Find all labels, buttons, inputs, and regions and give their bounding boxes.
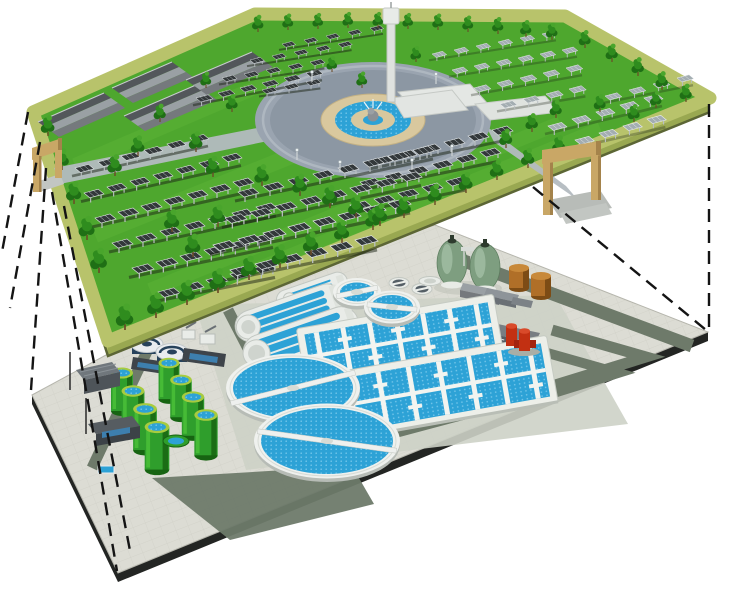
projection-line	[10, 142, 40, 308]
clarifier	[254, 404, 400, 483]
clarifier	[364, 291, 420, 328]
green-tank	[194, 409, 217, 460]
illustration-stage	[0, 0, 740, 589]
gas-holder	[389, 278, 409, 289]
brown-tank	[509, 264, 529, 292]
circular-pad	[419, 277, 441, 286]
exploded-view-illustration	[0, 0, 740, 589]
projection-line	[31, 168, 46, 390]
brown-tank	[531, 272, 551, 300]
green-tank	[145, 421, 170, 475]
small-green-pad	[163, 435, 189, 447]
